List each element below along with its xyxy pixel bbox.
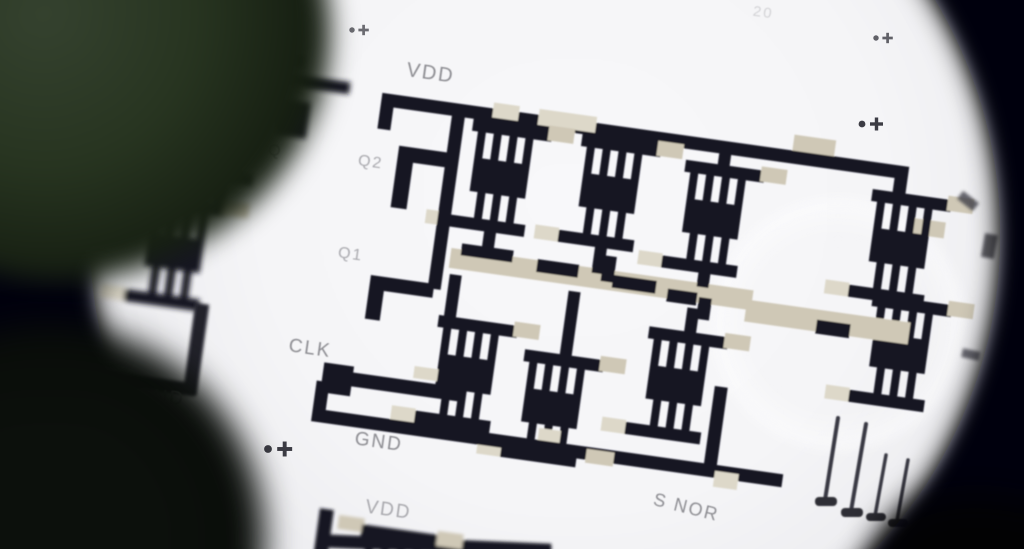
q1-label: Q1 <box>337 244 364 264</box>
lens-rim-marks <box>957 191 998 361</box>
circuit-main <box>310 74 995 520</box>
pin <box>875 455 886 516</box>
fiducial-mark-icon <box>873 33 893 43</box>
s-nor-label: S NOR <box>651 489 721 525</box>
vdd-bottom-label: VDD <box>364 497 413 524</box>
fiducial-mark-icon <box>264 442 292 457</box>
alignment-pins <box>815 418 908 527</box>
fiducial-mark-icon <box>349 25 369 35</box>
pin-foot <box>815 497 837 506</box>
pin-foot <box>841 508 863 517</box>
clk-label: CLK <box>287 335 332 362</box>
top-edge-partial-label: 20 <box>752 3 775 23</box>
vdd-top-label: VDD <box>405 59 456 87</box>
photo-scene: VDD Q Q2 Q1 CLK GND S NOR GND VDD 20 <box>0 0 1024 549</box>
pin <box>851 424 866 511</box>
q2-label: Q2 <box>357 152 384 172</box>
fiducial-mark-icon <box>859 118 883 131</box>
pin <box>825 418 838 500</box>
pin-foot <box>866 513 886 521</box>
